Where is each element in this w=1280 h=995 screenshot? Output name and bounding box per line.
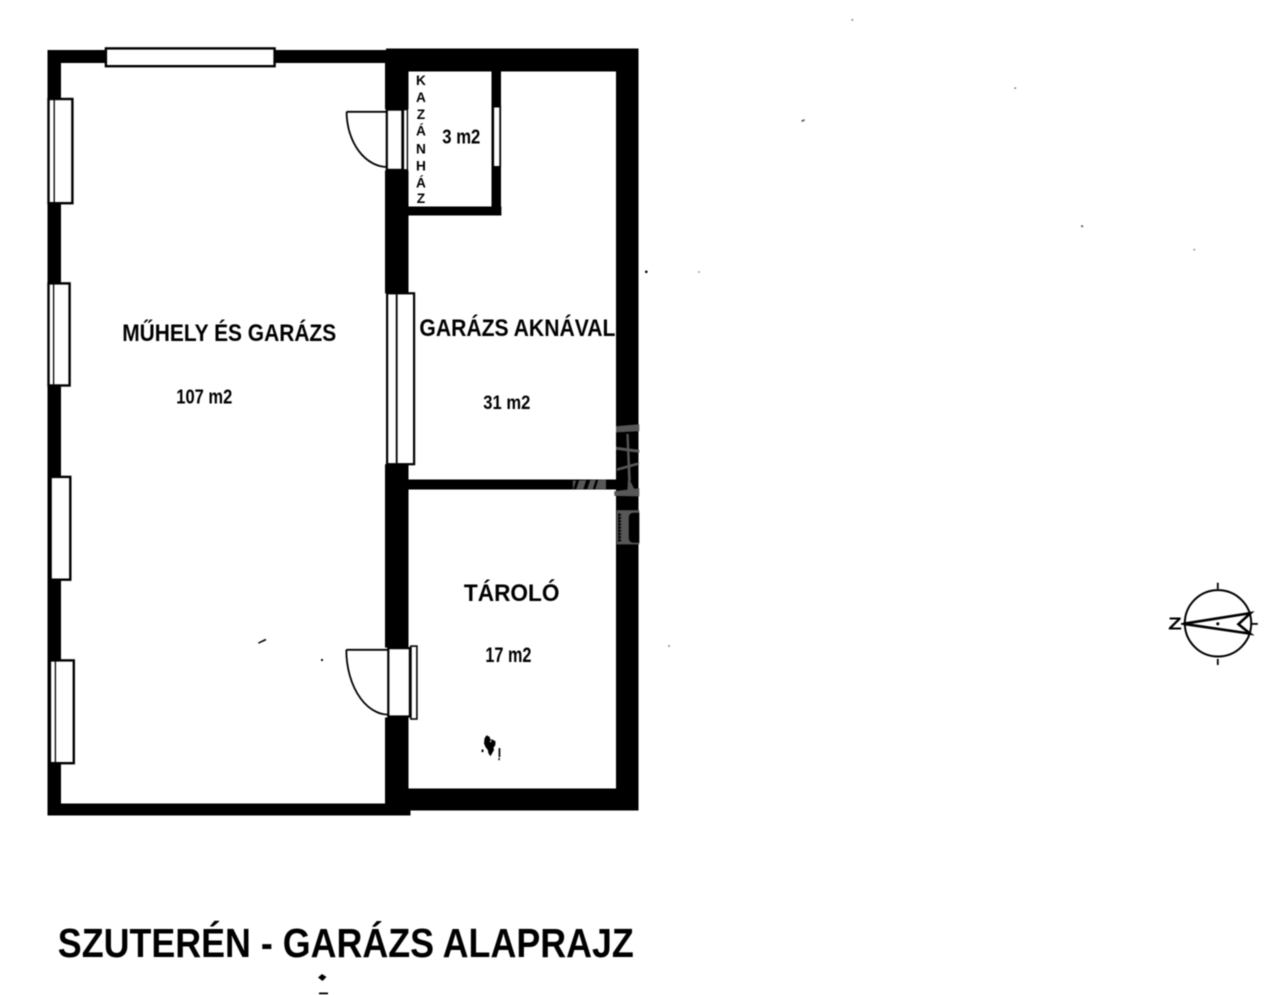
svg-text:SZUTERÉN - GARÁZS ALAPRAJZ: SZUTERÉN - GARÁZS ALAPRAJZ xyxy=(58,920,634,966)
svg-text:N: N xyxy=(416,141,426,156)
svg-text:GARÁZS AKNÁVAL: GARÁZS AKNÁVAL xyxy=(419,314,615,342)
svg-text:Z: Z xyxy=(1168,615,1182,634)
svg-text:Z: Z xyxy=(417,107,425,122)
svg-text:3 m2: 3 m2 xyxy=(442,126,480,149)
svg-text:K: K xyxy=(416,73,426,88)
svg-text:17 m2: 17 m2 xyxy=(485,644,531,667)
svg-text:Z: Z xyxy=(417,191,425,206)
svg-text:H: H xyxy=(416,158,426,173)
svg-text:MŰHELY ÉS GARÁZS: MŰHELY ÉS GARÁZS xyxy=(122,319,336,347)
svg-text:31 m2: 31 m2 xyxy=(483,392,530,414)
svg-text:Á: Á xyxy=(416,124,426,139)
svg-text:107 m2: 107 m2 xyxy=(176,386,232,408)
svg-text:Á: Á xyxy=(416,175,426,190)
svg-text:TÁROLÓ: TÁROLÓ xyxy=(464,579,560,607)
svg-text:A: A xyxy=(416,90,426,105)
